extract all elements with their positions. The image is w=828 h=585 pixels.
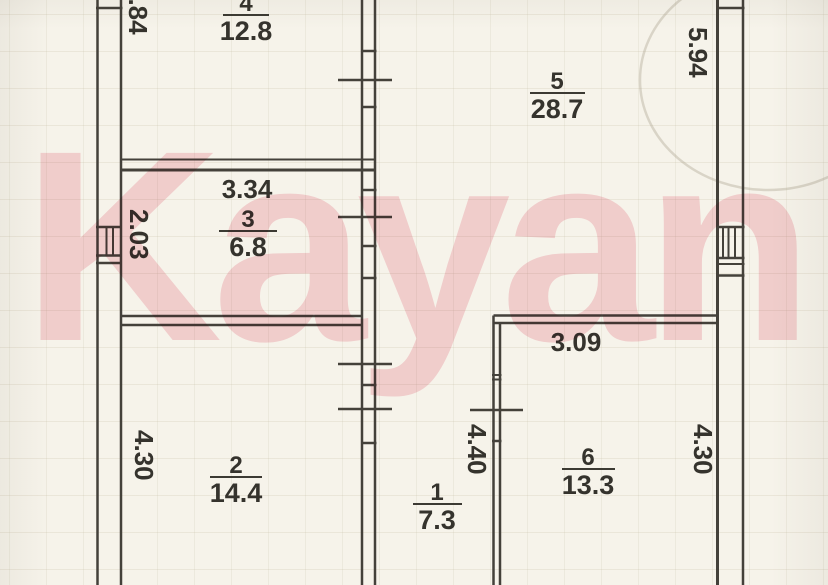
room-6-number: 6 (538, 447, 638, 468)
dim-room1-height: 4.40 (461, 424, 492, 475)
room-5-number: 5 (507, 71, 607, 92)
room-4-label: 4 12.8 (196, 0, 296, 45)
room-6-label: 6 13.3 (538, 447, 638, 499)
room-1-label: 1 7.3 (387, 482, 487, 534)
room-1-area: 7.3 (387, 507, 487, 534)
room-2-label: 2 14.4 (186, 455, 286, 507)
room-4-area: 12.8 (196, 18, 296, 45)
floor-plan-photo: 4 12.8 5 28.7 3 6.8 2 14.4 1 7.3 6 13.3 … (0, 0, 828, 585)
room-2-area: 14.4 (186, 480, 286, 507)
kayan-watermark: Kayan (22, 110, 804, 382)
room-4-number: 4 (196, 0, 296, 14)
dim-left-wall-top: 3.84 (122, 0, 153, 35)
room-6-area: 13.3 (538, 472, 638, 499)
dim-room2-height: 4.30 (128, 430, 159, 481)
dim-room6-height: 4.30 (687, 424, 718, 475)
room-1-number: 1 (387, 482, 487, 503)
room-2-number: 2 (186, 455, 286, 476)
dim-right-wall-top: 5.94 (682, 27, 713, 78)
